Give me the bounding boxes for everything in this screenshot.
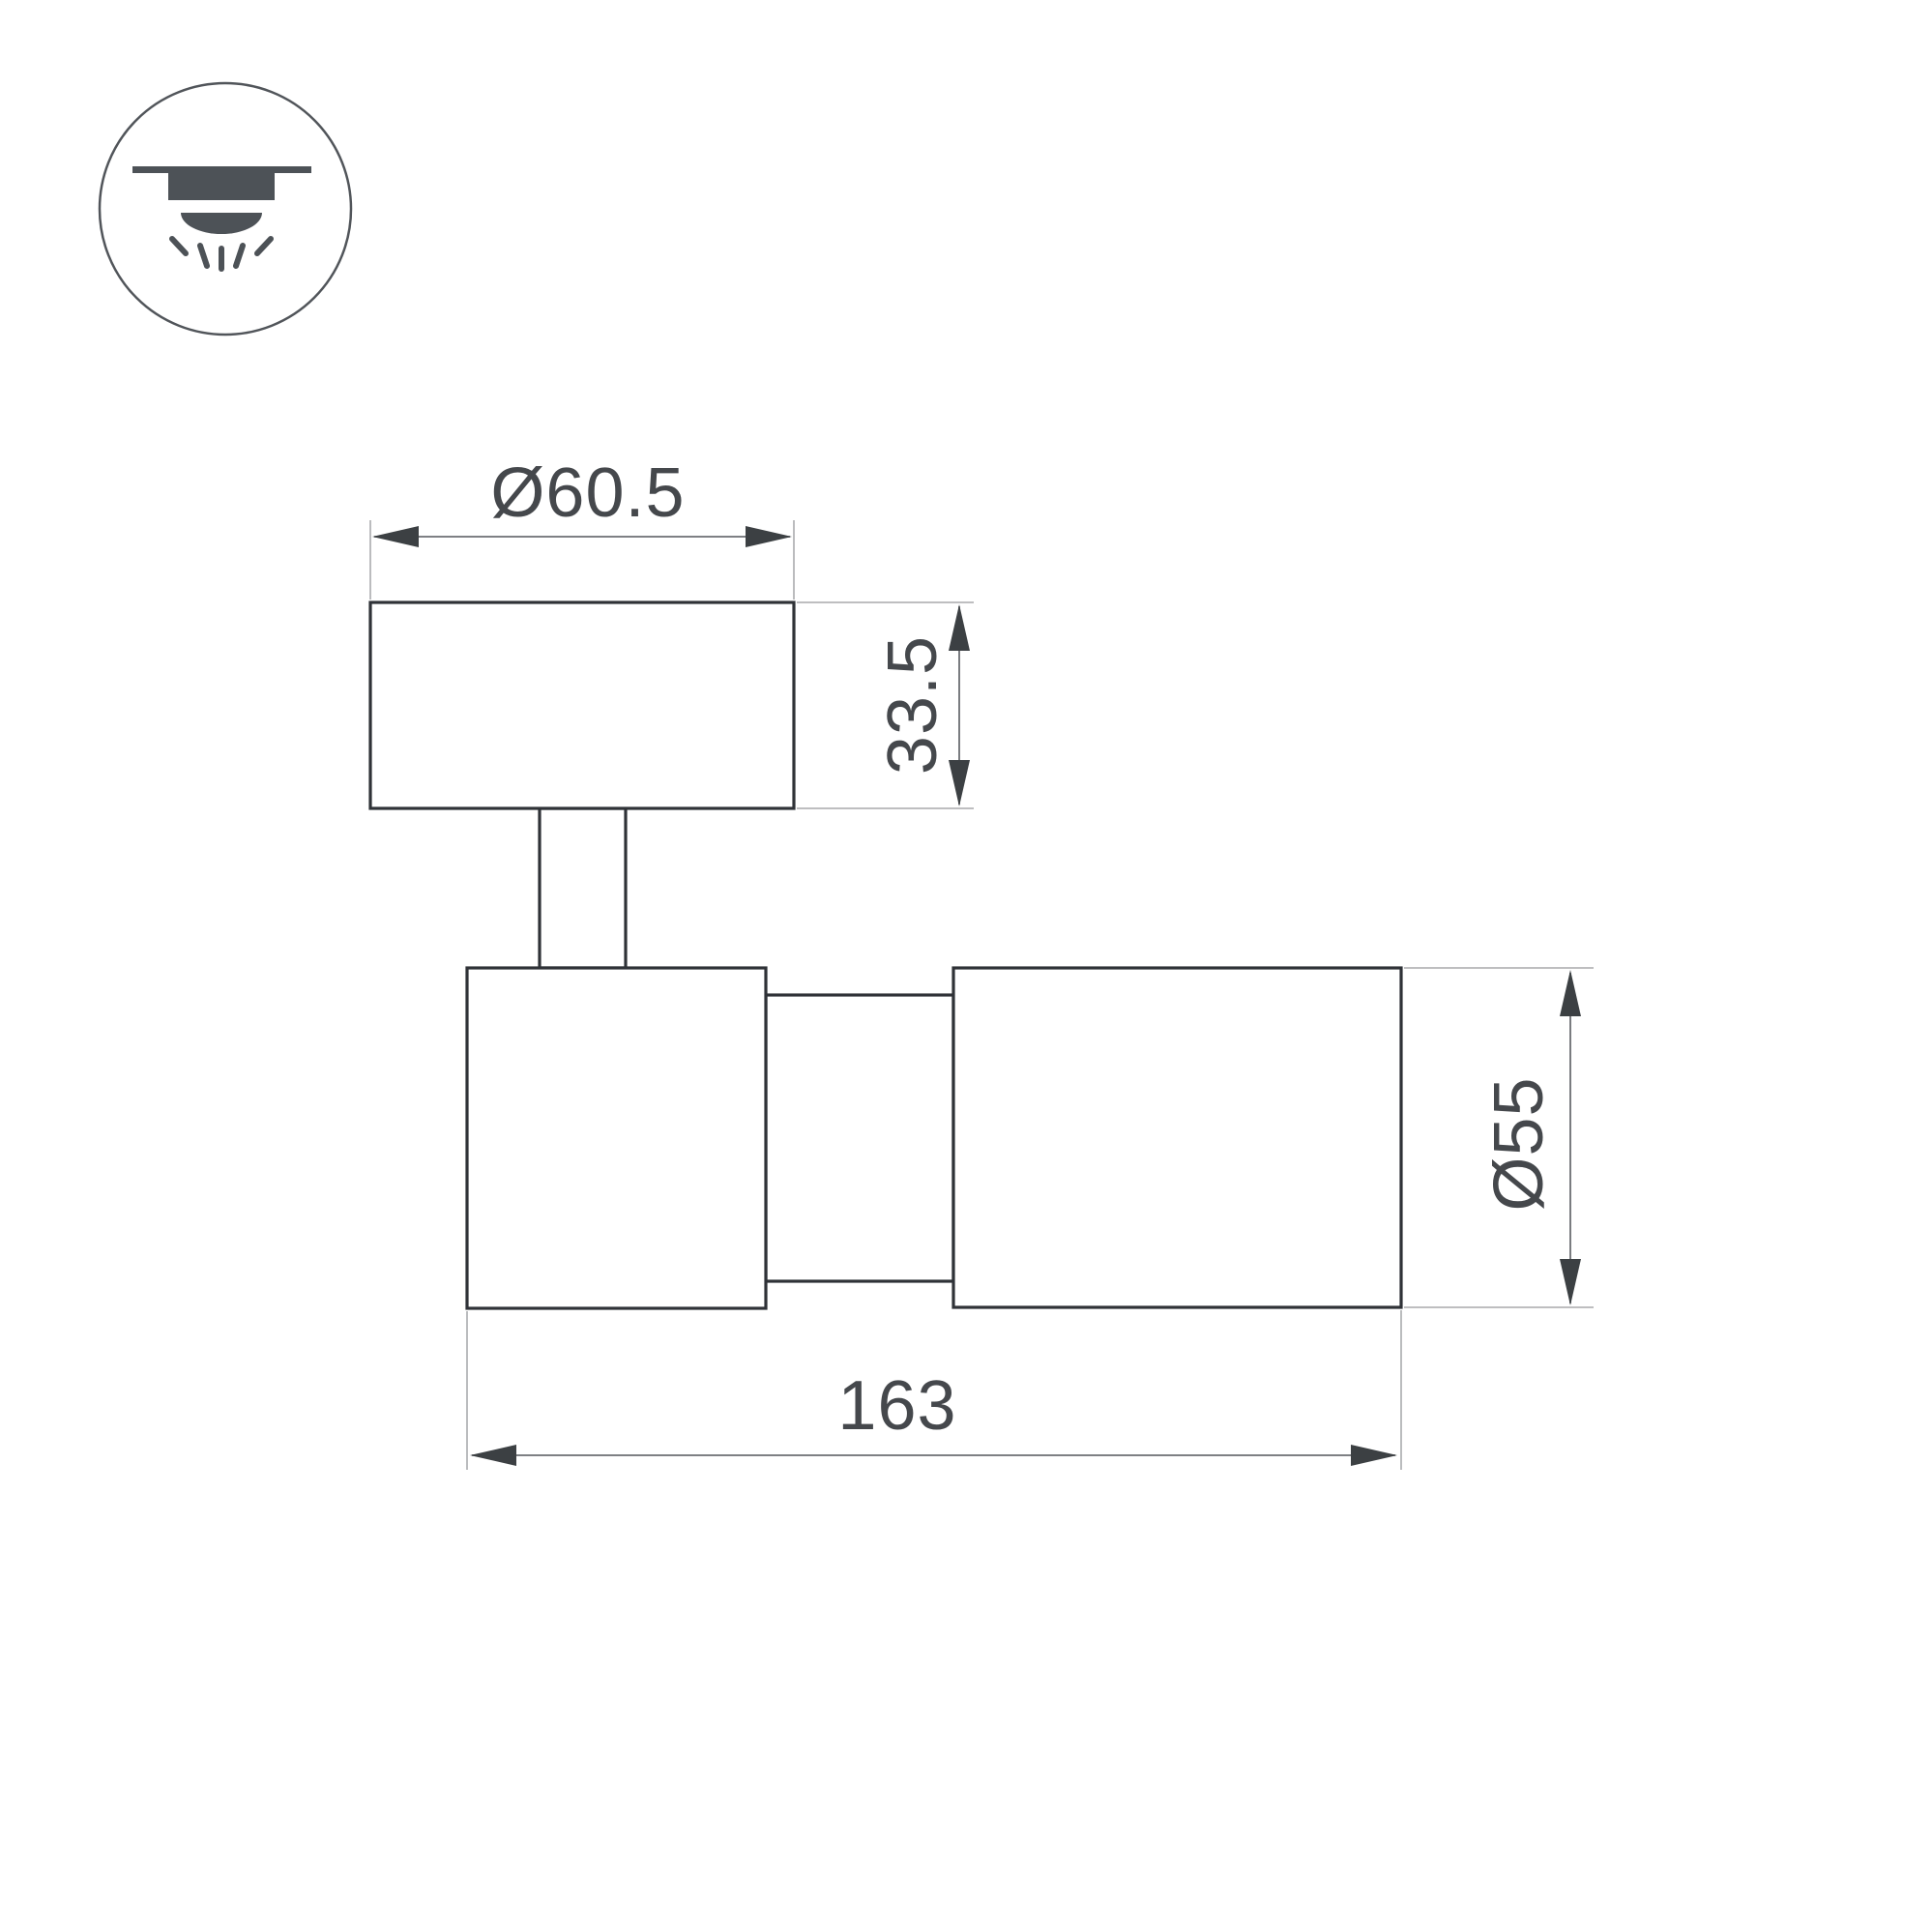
icon-circle	[100, 83, 351, 335]
lamp-dome	[181, 213, 262, 234]
swivel-stem	[540, 808, 626, 968]
light-ray-icon	[172, 239, 186, 253]
dimension-body-diameter: Ø55	[1404, 968, 1594, 1307]
body-rear-section	[467, 968, 766, 1308]
arrowhead-up-icon	[1560, 970, 1581, 1016]
ceiling-downlight-icon	[100, 83, 351, 335]
arrowhead-down-icon	[949, 760, 970, 806]
dimension-mount-diameter: Ø60.5	[370, 454, 794, 600]
arrowhead-left-icon	[470, 1445, 516, 1466]
technical-drawing: Ø60.5 33.5 Ø55 163	[0, 0, 1932, 1932]
body-connector	[766, 995, 953, 1281]
arrowhead-right-icon	[1351, 1445, 1397, 1466]
arrowhead-down-icon	[1560, 1259, 1581, 1305]
arrowhead-up-icon	[949, 604, 970, 651]
arrowhead-left-icon	[372, 526, 419, 547]
body-front-section	[953, 968, 1401, 1307]
arrowhead-right-icon	[746, 526, 792, 547]
ceiling-mount-base	[370, 602, 794, 808]
dimension-label-body-diameter: Ø55	[1480, 1076, 1558, 1211]
dimension-label-overall-length: 163	[837, 1367, 956, 1445]
dimension-label-mount-height: 33.5	[874, 635, 951, 775]
dimension-mount-height: 33.5	[797, 602, 974, 808]
dimension-overall-length: 163	[467, 1310, 1401, 1470]
light-ray-icon	[200, 246, 207, 266]
drawing-page: Ø60.5 33.5 Ø55 163	[0, 0, 1932, 1932]
recessed-housing	[168, 166, 275, 200]
dimension-label-mount-diameter: Ø60.5	[490, 454, 685, 532]
light-ray-icon	[257, 239, 271, 253]
light-ray-icon	[236, 246, 243, 266]
